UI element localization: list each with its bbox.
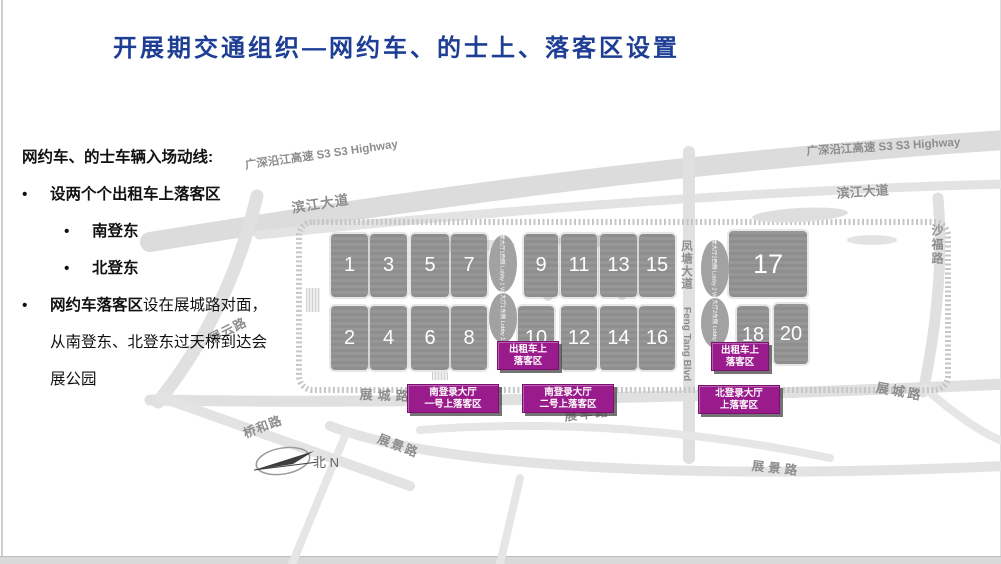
- road-label-fengtang-en: Feng Tang Blvd: [681, 307, 692, 381]
- marker-line: 南登录大厅: [526, 387, 610, 399]
- note-sub-item-2: • 北登东: [64, 250, 322, 287]
- note-sub-item-2-text: 北登东: [92, 250, 139, 287]
- lobby-1-west: 登录大厅1西侧 Lobby 1 West: [489, 235, 517, 292]
- note-item-2-bold: 网约车落客区: [50, 297, 143, 314]
- lobby-1-west-label: 登录大厅1西侧 Lobby 1 West: [499, 235, 507, 292]
- hall-3: 3: [370, 234, 407, 297]
- marker-line: 北登录大厅: [702, 388, 776, 400]
- road-label-binjiang-east: 滨江大道: [836, 179, 889, 202]
- note-item-2-text: 网约车落客区设在展城路对面， 从南登东、北登东过天桥到达会展公园: [50, 287, 282, 398]
- hall-5: 5: [411, 234, 449, 297]
- note-sub-item-1: • 南登东: [64, 213, 322, 250]
- marker-south-lobby-2-dropoff: 南登录大厅 二号上落客区: [522, 384, 614, 413]
- hall-7: 7: [451, 234, 487, 297]
- bullet-glyph: •: [22, 176, 50, 213]
- lobby-1-east-label: 登录大厅1东侧 Lobby 1 East: [499, 293, 507, 343]
- compass-north-label: 北 N: [313, 452, 339, 471]
- bullet-glyph: •: [64, 250, 92, 287]
- lobby-2-east-label: 登录大厅2东侧 Lobby 2 East: [711, 298, 719, 348]
- marker-line: 出租车上: [715, 345, 765, 357]
- marker-line: 落客区: [715, 357, 765, 369]
- hall-6: 6: [411, 306, 449, 370]
- note-item-1: • 设两个个出租车上落客区: [22, 176, 322, 213]
- hall-8: 8: [451, 306, 487, 370]
- hall-4: 4: [370, 306, 407, 370]
- marker-line: 一号上落客区: [411, 399, 495, 411]
- hall-12: 12: [561, 306, 597, 370]
- bullet-glyph: •: [22, 287, 50, 398]
- lobby-2-west: 登录大厅2西侧 Lobby 2 West: [701, 240, 729, 297]
- hall-2: 2: [331, 306, 368, 370]
- marker-line: 二号上落客区: [526, 399, 610, 411]
- bullet-glyph: •: [64, 213, 92, 250]
- notes-heading: 网约车、的士车辆入场动线:: [22, 139, 322, 176]
- note-sub-item-1-text: 南登东: [92, 213, 139, 250]
- road-label-zhancheng-west: 展城路: [359, 384, 414, 405]
- marker-north-lobby-dropoff: 北登录大厅 上落客区: [698, 385, 780, 414]
- marker-taxi-dropoff-north: 出租车上 落客区: [711, 342, 769, 371]
- marker-south-lobby-1-dropoff: 南登录大厅 一号上落客区: [407, 384, 499, 413]
- note-item-2-rest1: 设在展城路对面，: [143, 297, 267, 314]
- marker-line: 落客区: [501, 356, 555, 368]
- hall-9: 9: [524, 234, 558, 297]
- slide: 广深沿江高速 S3 S3 Highway 广深沿江高速 S3 S3 Highwa…: [0, 0, 1001, 564]
- lobby-2-west-label: 登录大厅2西侧 Lobby 2 West: [711, 240, 719, 297]
- hall-16: 16: [639, 306, 675, 370]
- slide-title: 开展期交通组织—网约车、的士上、落客区设置: [113, 28, 680, 63]
- note-item-2-rest2: 从南登东、北登东过天桥到达会展公园: [50, 324, 282, 398]
- hall-13: 13: [600, 234, 637, 297]
- lobby-1-east: 登录大厅1东侧 Lobby 1 East: [489, 293, 517, 343]
- hall-15: 15: [639, 234, 675, 297]
- hall-11: 11: [561, 234, 597, 297]
- hall-1: 1: [331, 234, 368, 297]
- marker-line: 出租车上: [501, 344, 555, 356]
- lobby-2-east: 登录大厅2东侧 Lobby 2 East: [701, 298, 729, 348]
- hall-17: 17: [729, 231, 807, 297]
- hall-14: 14: [600, 306, 637, 370]
- marker-taxi-dropoff-south: 出租车上 落客区: [497, 341, 559, 370]
- road-label-fengtang: 凤塘大道: [678, 240, 694, 290]
- note-item-1-text: 设两个个出租车上落客区: [50, 176, 221, 213]
- road-label-shafu: 沙福路: [929, 224, 946, 266]
- hall-20: 20: [774, 304, 808, 364]
- marker-line: 上落客区: [702, 400, 776, 412]
- marker-line: 南登录大厅: [411, 387, 495, 399]
- note-item-2: • 网约车落客区设在展城路对面， 从南登东、北登东过天桥到达会展公园: [22, 287, 322, 398]
- notes-panel: 网约车、的士车辆入场动线: • 设两个个出租车上落客区 • 南登东 • 北登东 …: [22, 139, 322, 398]
